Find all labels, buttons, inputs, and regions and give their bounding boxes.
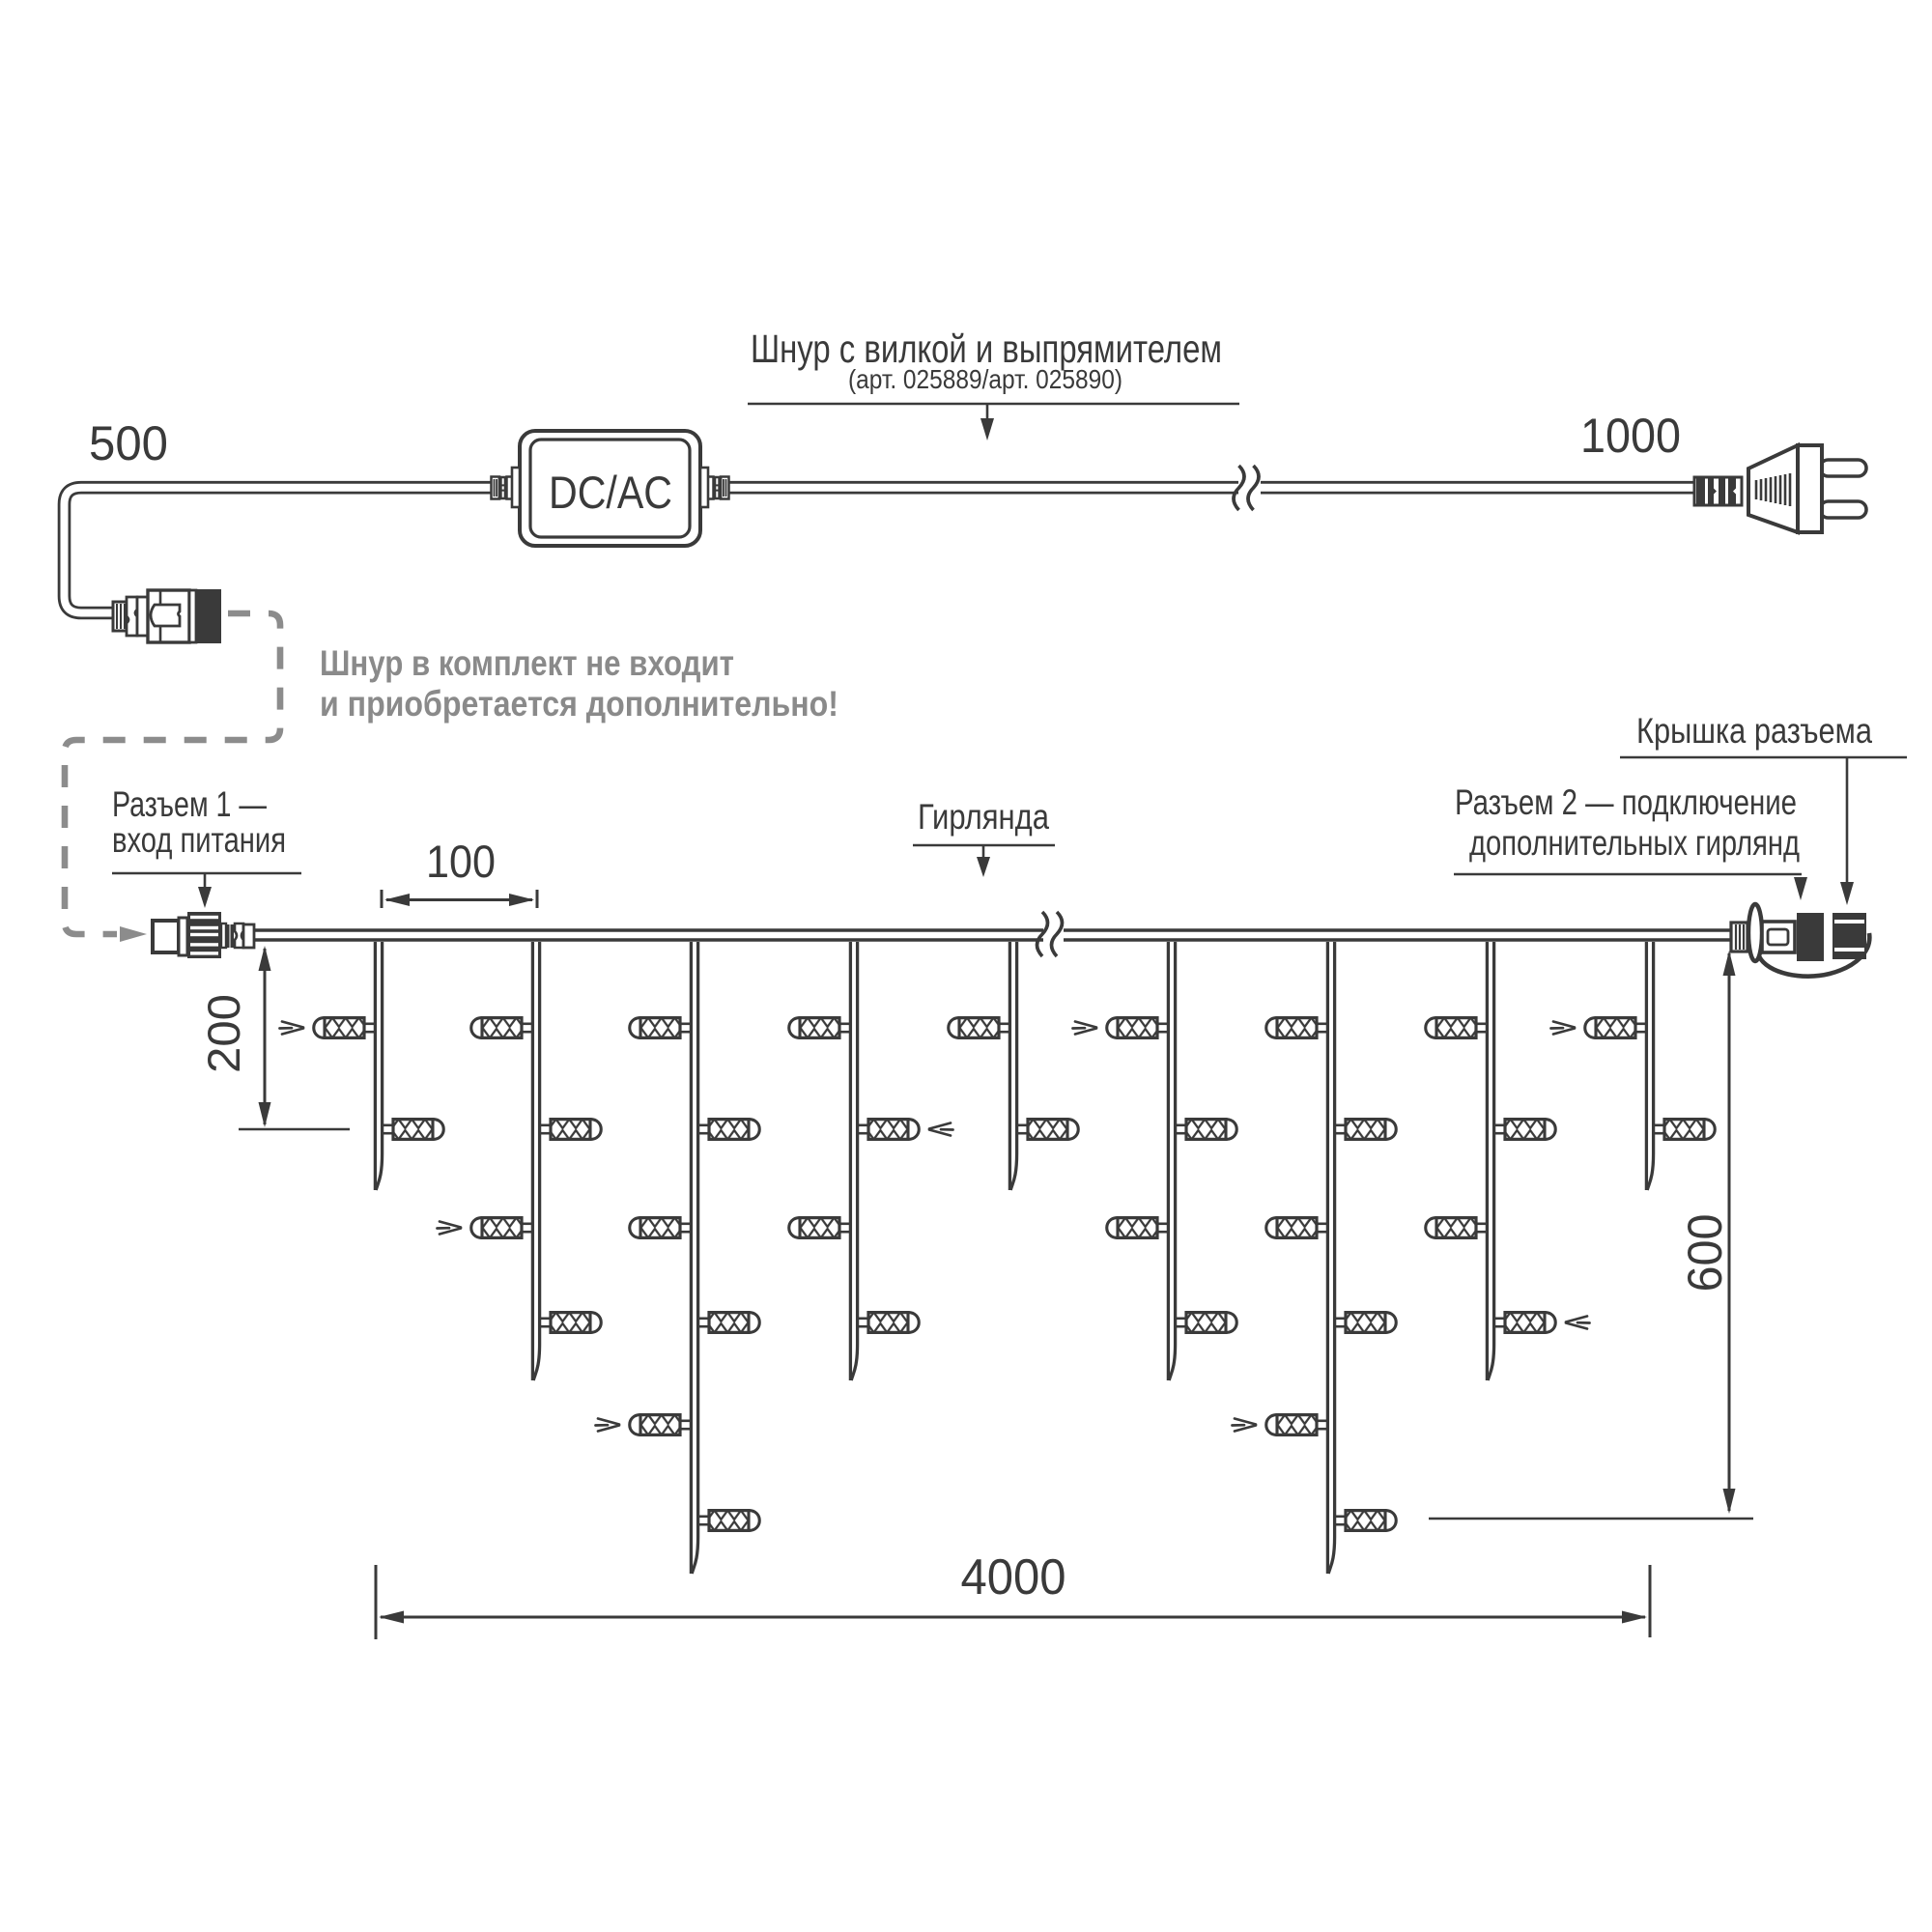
- svg-text:200: 200: [198, 994, 249, 1073]
- svg-text:4000: 4000: [961, 1549, 1066, 1605]
- svg-text:Гирлянда: Гирлянда: [918, 797, 1049, 837]
- svg-text:500: 500: [89, 416, 168, 470]
- svg-text:(арт. 025889/арт. 025890): (арт. 025889/арт. 025890): [848, 364, 1122, 394]
- svg-text:100: 100: [426, 836, 496, 887]
- svg-text:600: 600: [1678, 1214, 1732, 1293]
- svg-text:дополнительных гирлянд: дополнительных гирлянд: [1469, 823, 1800, 863]
- svg-text:и приобретается дополнительно!: и приобретается дополнительно!: [320, 684, 838, 724]
- svg-text:вход питания: вход питания: [112, 820, 286, 860]
- svg-text:Разъем 1 —: Разъем 1 —: [112, 784, 267, 824]
- svg-text:1000: 1000: [1580, 409, 1681, 463]
- svg-text:Шнур в комплект не входит: Шнур в комплект не входит: [320, 643, 734, 683]
- svg-text:Крышка разъема: Крышка разъема: [1636, 711, 1872, 751]
- svg-text:DC/AC: DC/AC: [549, 467, 672, 518]
- svg-text:Разъем 2 — подключение: Разъем 2 — подключение: [1455, 782, 1797, 822]
